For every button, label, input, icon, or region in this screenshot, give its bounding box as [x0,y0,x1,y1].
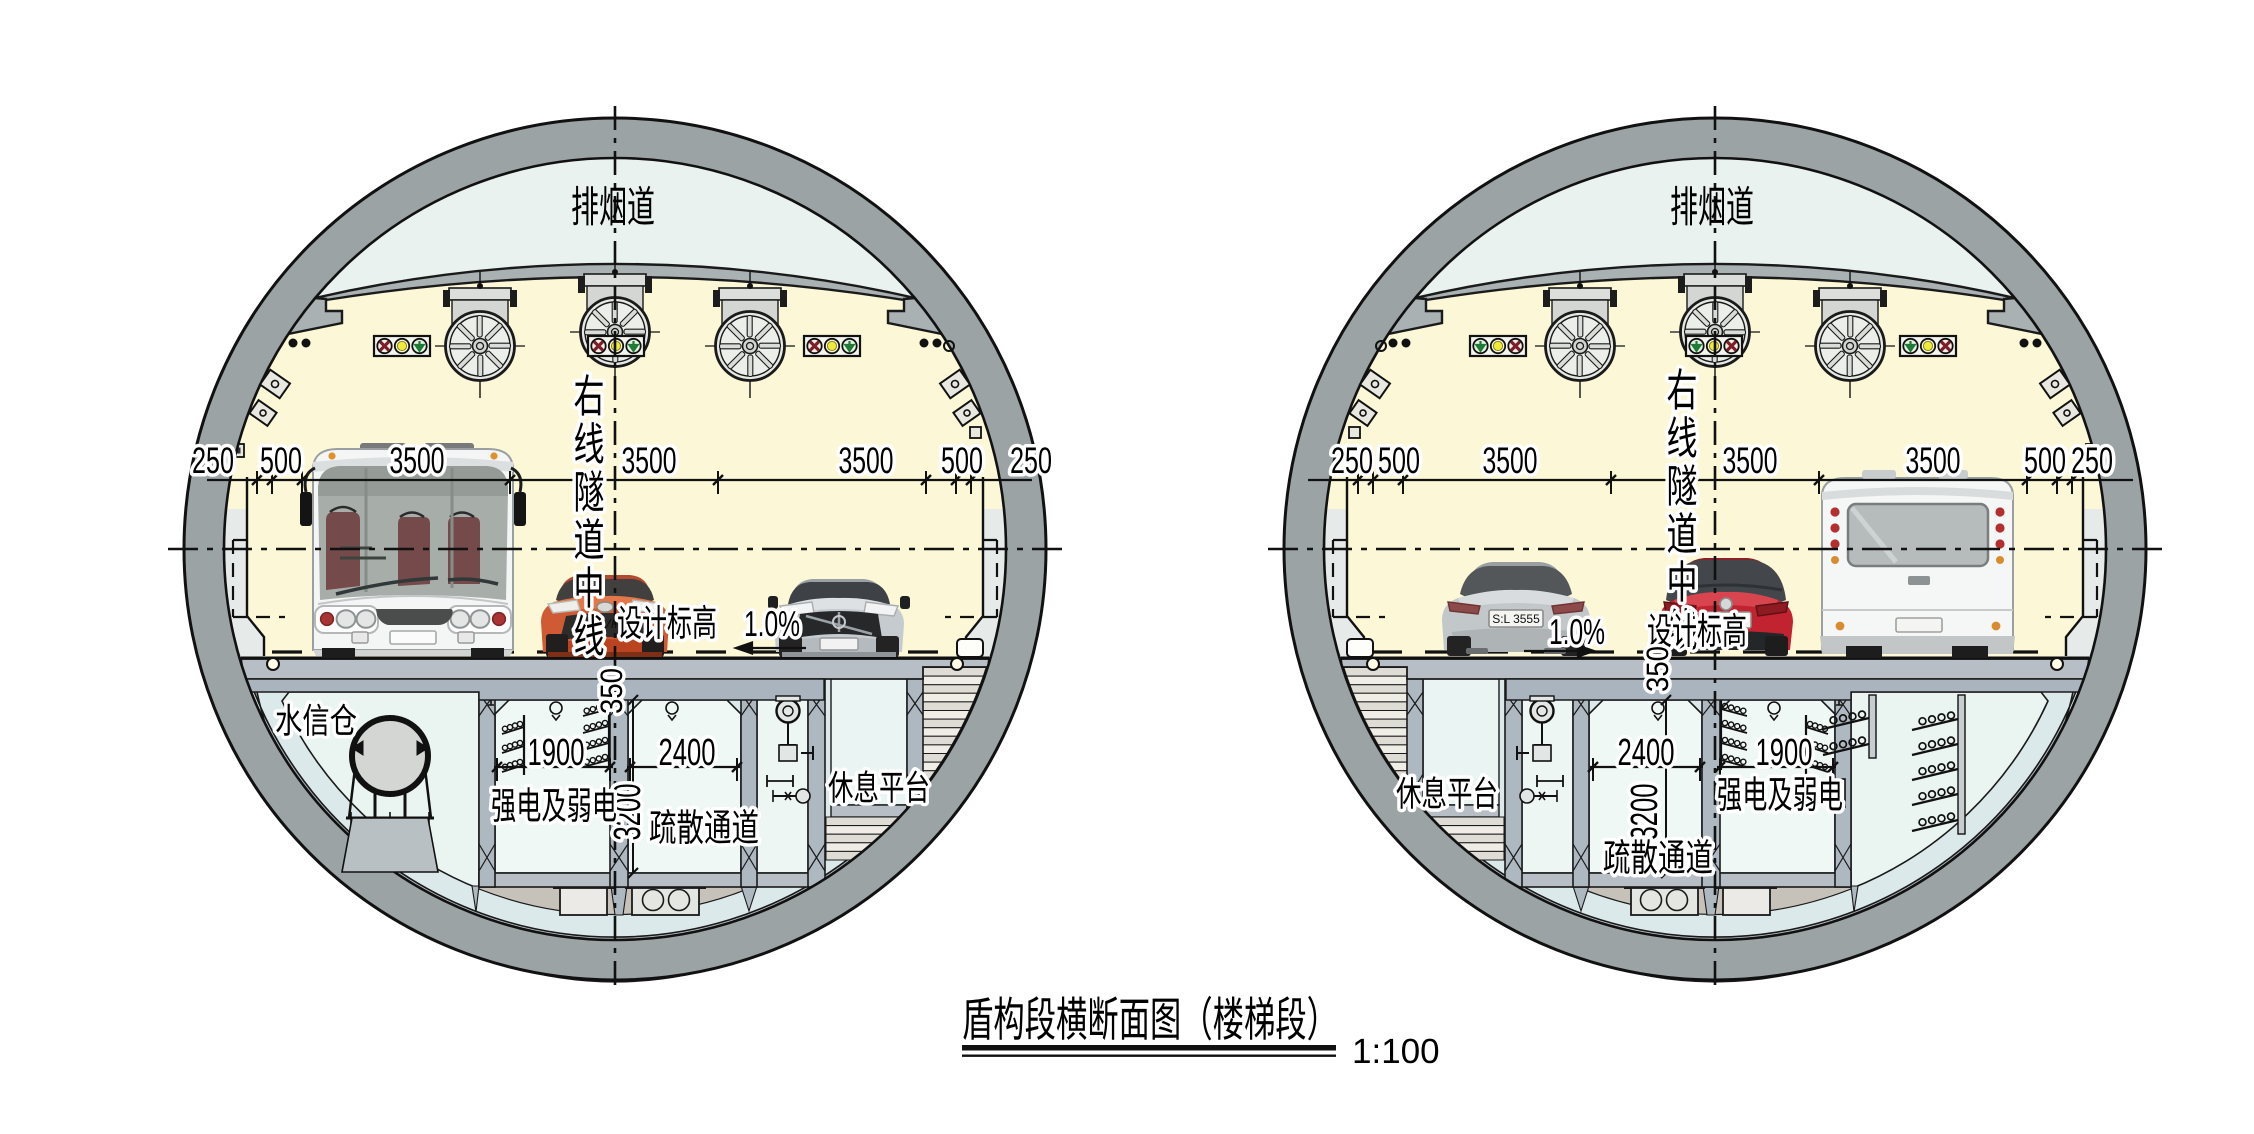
svg-text:S:L 3555: S:L 3555 [1492,612,1540,626]
